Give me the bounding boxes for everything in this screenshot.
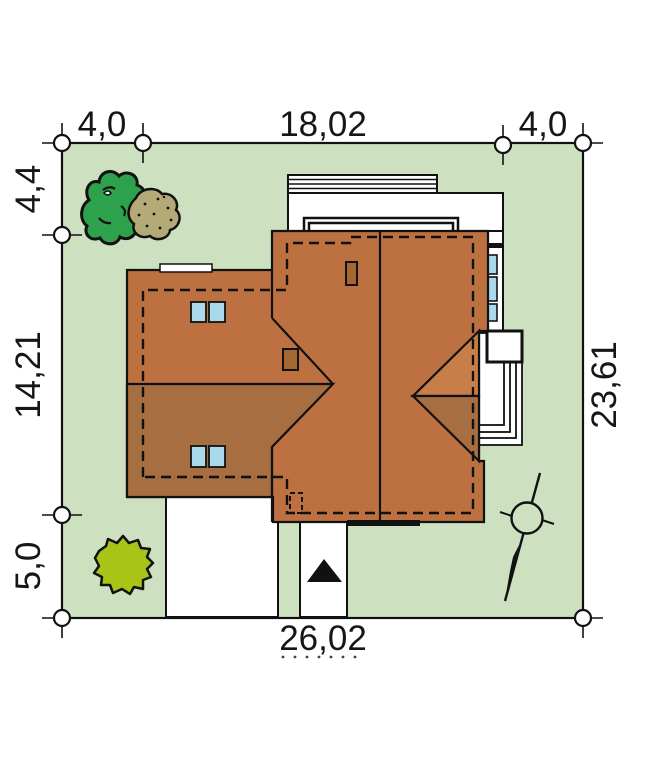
- top-terrace: [288, 193, 503, 233]
- dimension-label-top-right: 4,0: [519, 105, 568, 144]
- site-plan-page: 4,0 18,02 4,0 4,4 14,21 5,0 23,61 26,02: [0, 0, 650, 768]
- window: [488, 304, 497, 321]
- window: [488, 255, 497, 274]
- window: [488, 277, 497, 301]
- site-plan-drawing: 4,0 18,02 4,0 4,4 14,21 5,0 23,61 26,02: [0, 0, 650, 768]
- roof-window: [209, 446, 225, 467]
- driveway: [166, 497, 278, 617]
- roof-window: [209, 302, 225, 322]
- dimension-label-bottom: 26,02: [279, 619, 367, 658]
- dimension-label-left-bottom: 5,0: [9, 542, 48, 591]
- rear-terrace-platform: [487, 331, 522, 362]
- dimension-label-top-center: 18,02: [279, 105, 367, 144]
- chimney: [283, 349, 298, 370]
- rear-wall-bar: [347, 520, 420, 526]
- dimension-label-right: 23,61: [585, 341, 624, 429]
- dimension-label-left-middle: 14,21: [9, 331, 48, 419]
- roof: [127, 231, 488, 522]
- chimney: [346, 262, 357, 285]
- dimension-label-top-left: 4,0: [78, 105, 127, 144]
- roof-window: [191, 446, 206, 467]
- roof-vent: [160, 264, 212, 272]
- roof-window: [191, 302, 206, 322]
- tree-foliage-hole: [104, 191, 111, 195]
- dimension-label-left-top: 4,4: [9, 165, 48, 214]
